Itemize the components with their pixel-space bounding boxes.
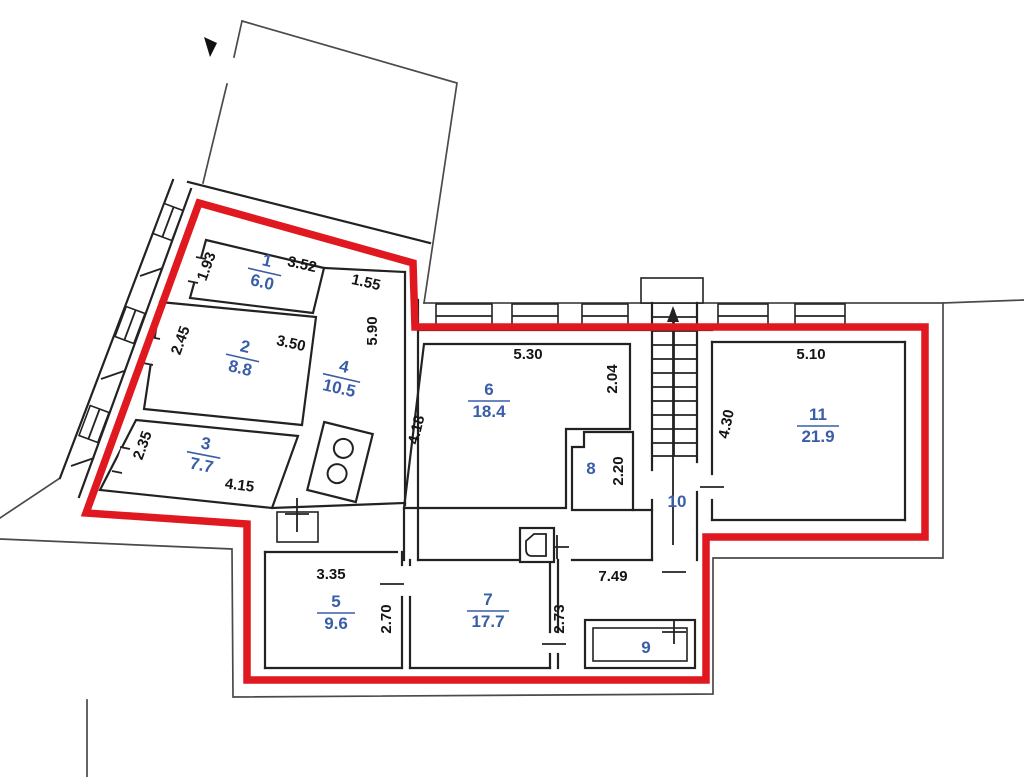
room-10-label: 10 [668,492,687,511]
svg-text:7.7: 7.7 [188,454,215,477]
main-top-wall [418,278,845,330]
room-5-label: 5 9.6 [317,592,355,633]
floor-plan: 1.93 3.52 1.55 2.45 3.50 5.90 2.35 4.15 … [0,0,1024,777]
svg-text:8: 8 [586,459,595,478]
svg-text:5: 5 [331,592,340,611]
svg-text:6.0: 6.0 [249,270,276,294]
sink-icon [520,528,554,562]
svg-text:17.7: 17.7 [471,612,504,631]
dim-label: 2.35 [130,429,156,462]
dim-label: 2.20 [610,456,627,485]
stair-treads [652,310,697,456]
dim-label: 3.50 [275,332,307,355]
dim-label: 4.18 [405,414,429,446]
window-icon [153,204,183,241]
dim-label: 1.93 [194,250,220,283]
stairs [652,303,697,560]
svg-text:11: 11 [809,405,827,424]
dim-label: 3.52 [286,253,318,276]
neighbour-outlines [0,21,1024,777]
svg-text:21.9: 21.9 [801,427,834,446]
room-2-label: 2 8.8 [221,334,263,382]
stove-icon [307,422,372,502]
room-8-label: 8 [586,459,595,478]
svg-text:10: 10 [668,492,687,511]
svg-text:2: 2 [238,336,252,357]
room-9-label: 9 [641,638,650,657]
room-7-label: 7 17.7 [467,590,509,631]
dim-label: 2.73 [551,604,568,633]
room-1-label: 1 6.0 [243,248,285,296]
dim-label: 4.30 [715,408,738,440]
stair-landing-bay [641,278,703,303]
dim-label: 1.55 [350,271,382,294]
dim-label: 2.45 [168,324,194,357]
room-4-label: 4 10.5 [319,353,365,401]
dim-label: 5.30 [513,346,542,363]
dim-label: 2.04 [604,364,621,394]
window-icon [79,406,109,443]
dim-label: 7.49 [598,568,627,585]
dim-label: 3.35 [316,566,345,583]
svg-text:3: 3 [199,433,212,453]
svg-text:7: 7 [483,590,492,609]
floor-plan-drawing: 1.93 3.52 1.55 2.45 3.50 5.90 2.35 4.15 … [0,0,1024,777]
ink-mark [204,37,217,57]
svg-text:18.4: 18.4 [472,402,506,421]
dim-label: 5.10 [796,346,825,363]
dim-label: 5.90 [364,316,381,345]
svg-text:9: 9 [641,638,650,657]
svg-text:10.5: 10.5 [321,375,358,401]
svg-text:4: 4 [337,356,351,377]
svg-text:6: 6 [484,380,493,399]
dim-label: 4.15 [224,475,255,495]
room-6-label: 6 18.4 [468,380,510,421]
room-11-label: 11 21.9 [797,405,839,446]
room-3-label: 3 7.7 [183,431,224,478]
window-icon [115,307,145,344]
dim-label: 2.70 [378,604,395,633]
svg-text:9.6: 9.6 [324,614,348,633]
svg-text:8.8: 8.8 [227,356,254,380]
